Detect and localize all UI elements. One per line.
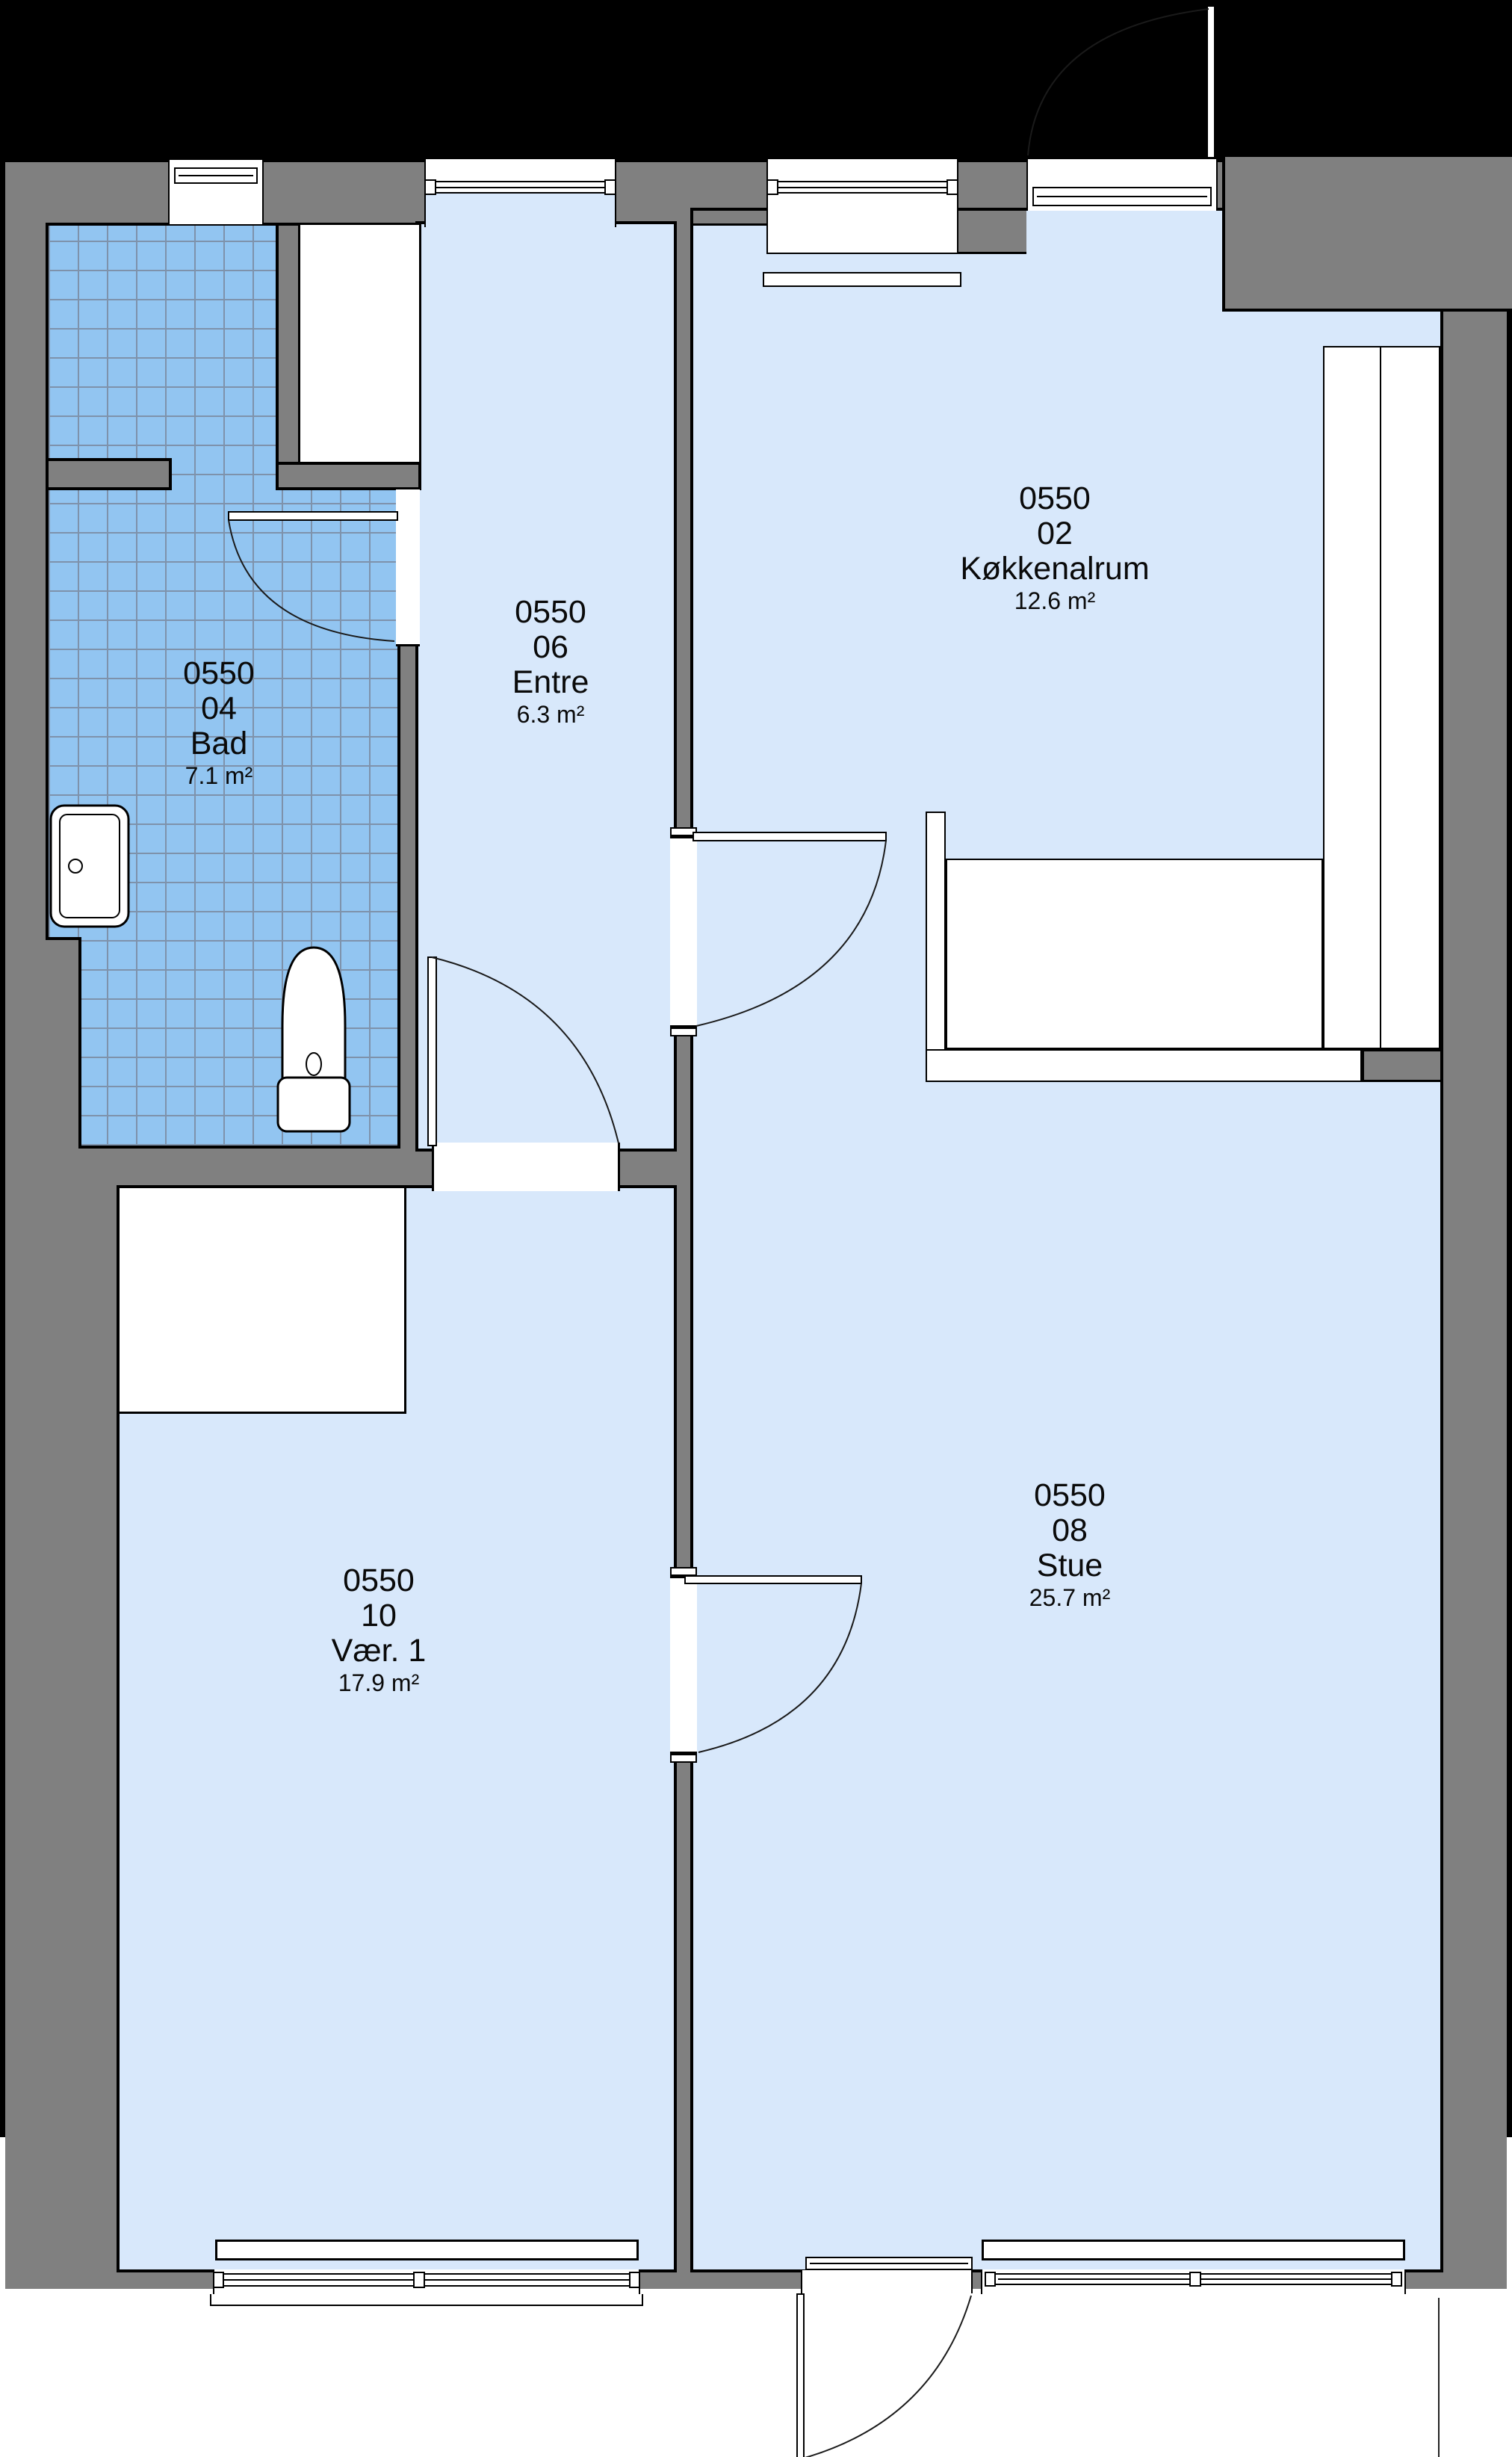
radiator-stue (982, 2240, 1405, 2260)
room-number: 08 (1029, 1513, 1110, 1548)
door-patio-glass (805, 2257, 973, 2270)
closet-niche-entre (298, 223, 421, 467)
door-stue-opening (670, 1576, 697, 1754)
room-number: 06 (512, 630, 589, 665)
door-stue-cap-top (670, 1567, 697, 1576)
room-code: 0550 (332, 1563, 427, 1598)
room-code: 0550 (512, 595, 589, 630)
window-vaer1-block-right (629, 2272, 640, 2288)
wall-pier-kitchen-left (693, 211, 766, 226)
room-name: Entre (512, 665, 589, 700)
window-entre-recess (424, 194, 616, 227)
window-vaer1-block-left (213, 2272, 224, 2288)
room-area: 6.3 m² (512, 700, 589, 729)
kitchen-peninsula-block (946, 859, 1323, 1049)
door-vaer1-opening (432, 1143, 620, 1191)
kitchen-peninsula-edge-bottom (926, 1049, 1362, 1082)
room-name: Køkkenalrum (960, 551, 1149, 587)
wall-top-right-corner (1222, 157, 1512, 312)
wall-stub-right (1362, 1049, 1440, 1082)
floor-plan: 0550 04 Bad 7.1 m² 0550 06 Entre 6.3 m² … (0, 0, 1512, 2457)
room-label-koekkenalrum: 0550 02 Køkkenalrum 12.6 m² (960, 481, 1149, 615)
window-vaer1-glass (219, 2273, 634, 2287)
outside-corner-line (1438, 2298, 1440, 2457)
wall-under-closet (276, 462, 421, 490)
kitchen-peninsula-edge-left (926, 812, 946, 1082)
door-stue-cap-bottom (670, 1754, 697, 1763)
window-koekken-glass (772, 181, 952, 194)
door-patio-arc (802, 2296, 971, 2457)
room-label-entre: 0550 06 Entre 6.3 m² (512, 595, 589, 729)
room-number: 04 (183, 691, 255, 726)
room-code: 0550 (1029, 1478, 1110, 1513)
kitchen-counter-right (1323, 346, 1440, 1049)
closet-zone-vaer1 (117, 1186, 406, 1414)
room-area: 12.6 m² (960, 587, 1149, 615)
window-entre-glass (430, 181, 610, 194)
room-name: Vær. 1 (332, 1634, 427, 1669)
radiator-kitchen (763, 272, 961, 287)
wall-left-step (46, 937, 81, 1149)
door-koekken-cap-bottom (670, 1027, 697, 1036)
door-koekken-opening (670, 836, 697, 1027)
room-number: 02 (960, 516, 1149, 551)
door-koekken-cap-top (670, 827, 697, 836)
door-patio-opening (801, 2270, 973, 2293)
window-stue-block-right (1391, 2272, 1402, 2287)
room-area: 7.1 m² (183, 761, 255, 790)
kitchen-counter-edge-line (1380, 347, 1381, 1048)
window-entre-block-left (424, 179, 436, 195)
room-area: 17.9 m² (332, 1669, 427, 1697)
door-entry-glass (1032, 187, 1212, 206)
room-name: Stue (1029, 1548, 1110, 1583)
window-stue-mullion (1189, 2272, 1201, 2287)
room-code: 0550 (183, 656, 255, 691)
door-bad-opening (396, 487, 420, 646)
window-koekken-block-right (946, 179, 958, 195)
wall-bad-partition-stub (46, 458, 172, 490)
radiator-vaer1 (215, 2240, 639, 2260)
window-vaer1-mullion (413, 2272, 425, 2288)
wall-pier-kitchen (958, 211, 1026, 254)
room-name: Bad (183, 726, 255, 761)
door-patio-leaf (797, 2294, 804, 2457)
room-area: 25.7 m² (1029, 1583, 1110, 1612)
room-label-vaer1: 0550 10 Vær. 1 17.9 m² (332, 1563, 427, 1697)
window-stue-block-left (985, 2272, 996, 2287)
window-entre-block-right (604, 179, 616, 195)
window-koekken (766, 158, 958, 254)
room-code: 0550 (960, 481, 1149, 516)
window-koekken-block-left (766, 179, 778, 195)
window-bad-glass (174, 167, 258, 184)
window-vaer1-sill (210, 2294, 643, 2306)
room-label-bad: 0550 04 Bad 7.1 m² (183, 656, 255, 790)
room-number: 10 (332, 1598, 427, 1634)
room-label-stue: 0550 08 Stue 25.7 m² (1029, 1478, 1110, 1612)
